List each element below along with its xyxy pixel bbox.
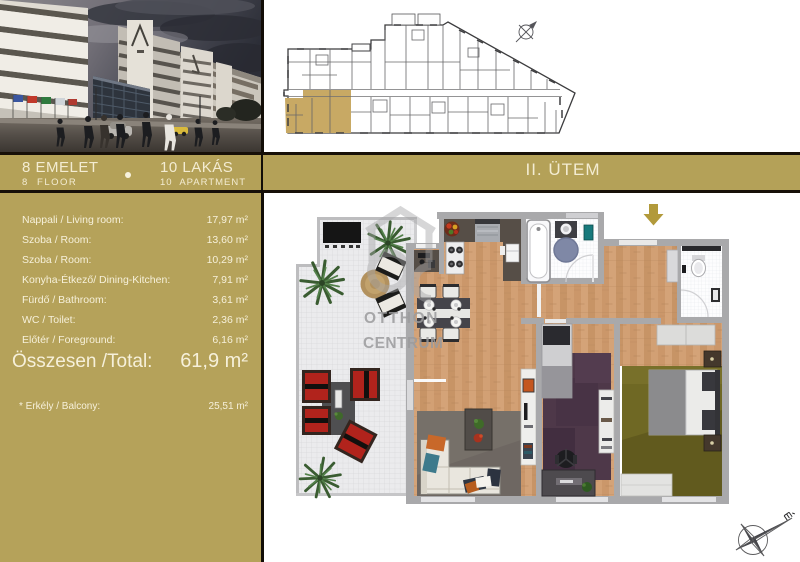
svg-text:CENTRUM: CENTRUM [363, 335, 443, 352]
svg-text:OTTHON: OTTHON [364, 310, 439, 327]
